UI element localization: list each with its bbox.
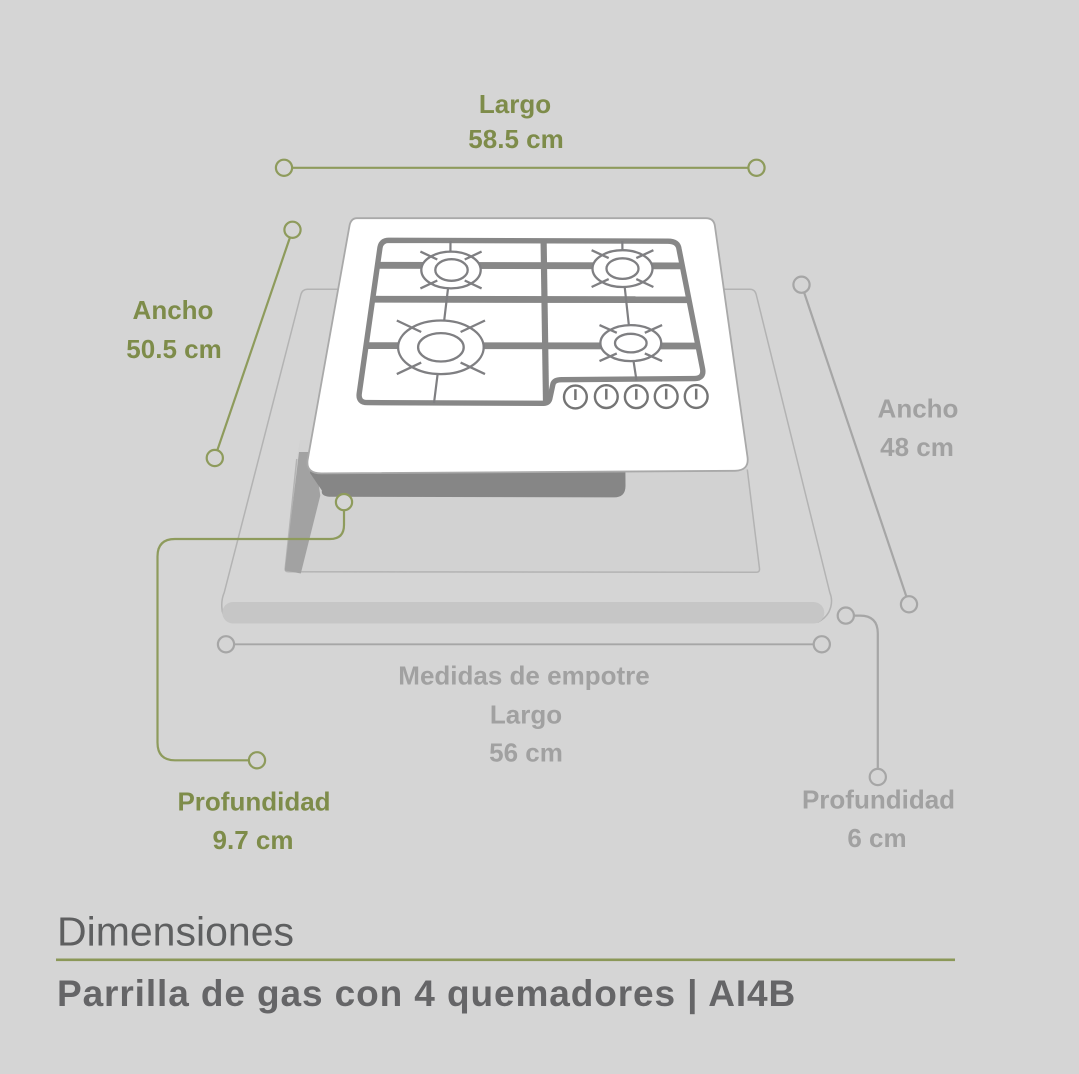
svg-text:9.7 cm: 9.7 cm (213, 825, 294, 855)
svg-text:50.5 cm: 50.5 cm (126, 334, 221, 364)
svg-text:Profundidad: Profundidad (177, 787, 330, 817)
svg-text:Dimensiones: Dimensiones (57, 909, 294, 955)
svg-text:58.5 cm: 58.5 cm (468, 124, 563, 154)
svg-text:Ancho: Ancho (133, 295, 214, 325)
svg-text:56 cm: 56 cm (489, 738, 563, 768)
svg-text:Largo: Largo (490, 699, 562, 729)
svg-text:Parrilla de gas con 4 quemador: Parrilla de gas con 4 quemadores | AI4B (57, 973, 796, 1015)
svg-text:Ancho: Ancho (878, 394, 959, 424)
svg-text:Largo: Largo (479, 89, 551, 119)
svg-text:6 cm: 6 cm (847, 823, 906, 853)
svg-text:Medidas de empotre: Medidas de empotre (398, 661, 649, 691)
svg-text:48 cm: 48 cm (880, 432, 954, 462)
svg-text:Profundidad: Profundidad (802, 785, 955, 815)
